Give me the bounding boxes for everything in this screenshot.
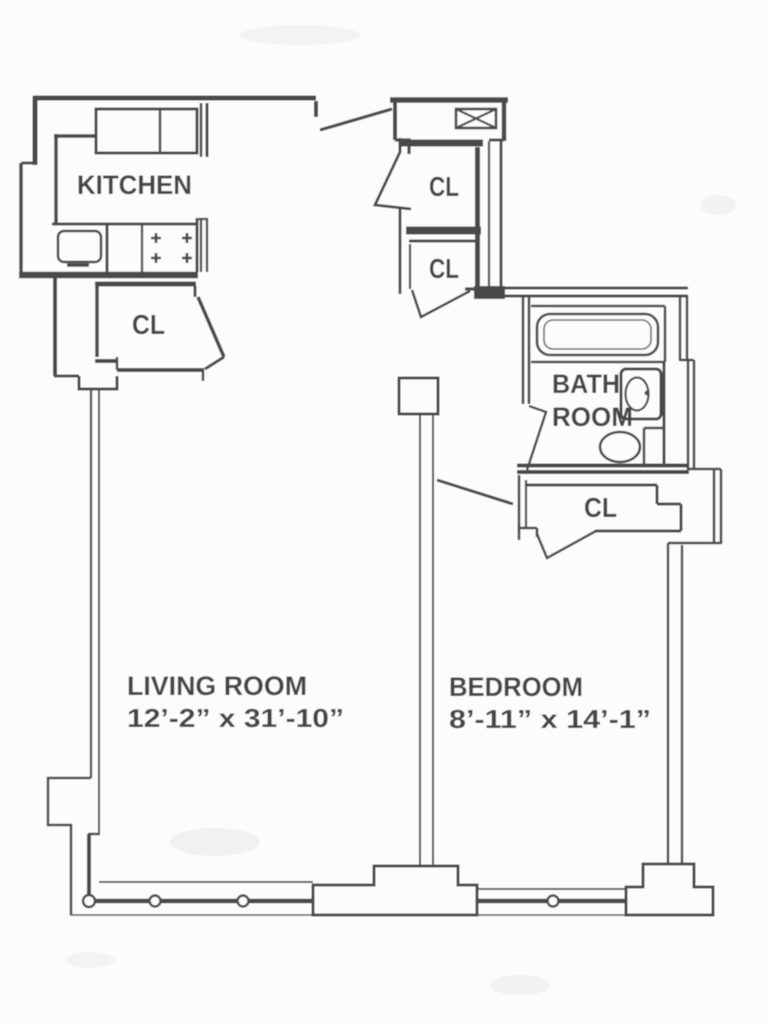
svg-text:BEDROOM: BEDROOM bbox=[449, 672, 583, 702]
svg-text:LIVING ROOM: LIVING ROOM bbox=[127, 671, 307, 701]
svg-text:CL: CL bbox=[584, 492, 617, 523]
svg-text:CL: CL bbox=[132, 309, 165, 340]
svg-text:CL: CL bbox=[429, 171, 459, 202]
svg-text:8’-11” x 14’-1”: 8’-11” x 14’-1” bbox=[449, 704, 651, 734]
svg-text:12’-2” x 31’-10”: 12’-2” x 31’-10” bbox=[127, 703, 344, 733]
svg-text:KITCHEN: KITCHEN bbox=[77, 170, 192, 200]
svg-text:BATH: BATH bbox=[552, 369, 620, 399]
svg-text:ROOM: ROOM bbox=[552, 402, 633, 432]
svg-text:CL: CL bbox=[429, 253, 459, 284]
